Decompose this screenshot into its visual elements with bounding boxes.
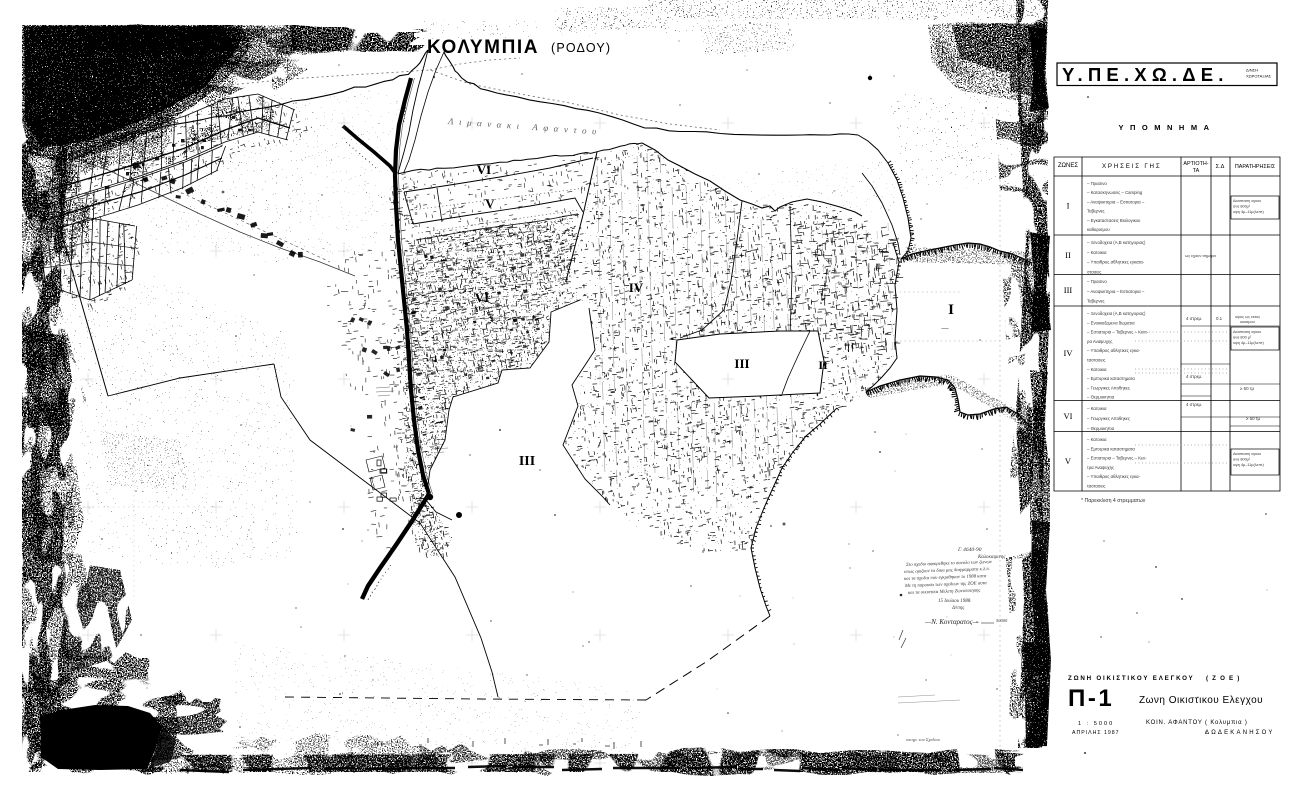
svg-text:– Αναψυκτηρια – Εστιατορια –: – Αναψυκτηρια – Εστιατορια – [1087, 199, 1145, 204]
svg-text:Δ/ντης: Δ/ντης [951, 606, 964, 611]
svg-text:υψη 4μ–11μ(λεπτ): υψη 4μ–11μ(λεπτ) [1233, 341, 1264, 345]
svg-text:ταστασεις: ταστασεις [1087, 484, 1106, 489]
svg-text:—: — [941, 324, 950, 332]
svg-text:4 στρεμ.: 4 στρεμ. [1186, 402, 1202, 407]
svg-text:ρα Αναψυχης: ρα Αναψυχης [1087, 339, 1112, 344]
svg-text:I: I [1067, 201, 1070, 211]
svg-text:τρα Αναψυχης: τρα Αναψυχης [1087, 465, 1114, 470]
svg-text:στασεις: στασεις [1087, 269, 1101, 274]
svg-text:– Εγκαταστασεις Βιολογικου: – Εγκαταστασεις Βιολογικου [1087, 218, 1141, 223]
svg-text:ανα 800μ²: ανα 800μ² [1233, 458, 1251, 462]
svg-text:– Γεωργικες Αποθηκες: – Γεωργικες Αποθηκες [1087, 416, 1130, 421]
svg-text:ΧΩΡΟΤΑΞΙΑΣ: ΧΩΡΟΤΑΞΙΑΣ [1246, 74, 1272, 79]
svg-text:I: I [948, 302, 954, 318]
svg-text:Διασπαση ογκου: Διασπαση ογκου [1233, 330, 1261, 334]
svg-text:15 Ιουλιου 1988.: 15 Ιουλιου 1988. [938, 599, 972, 604]
svg-text:* Παρεκκλιση 4 στρεμματων: * Παρεκκλιση 4 στρεμματων [1081, 498, 1146, 504]
svg-text:– Ξενοδοχεια (Α,Β κατηγοριας): – Ξενοδοχεια (Α,Β κατηγοριας) [1087, 240, 1146, 245]
svg-text:υπογρ. του Σχεδιου: υπογρ. του Σχεδιου [906, 737, 940, 742]
svg-text:υψη 4μ–11μ(λεπτ): υψη 4μ–11μ(λεπτ) [1233, 210, 1264, 214]
svg-text:IV: IV [1064, 348, 1074, 358]
svg-text:VI: VI [1064, 411, 1073, 421]
svg-text:ΔΩΔΕΚΑΝΗΣΟΥ: ΔΩΔΕΚΑΝΗΣΟΥ [1205, 730, 1275, 736]
svg-text:– Κατοικια: – Κατοικια [1087, 406, 1107, 411]
svg-text:V: V [485, 196, 495, 211]
svg-text:– Ξενοδοχεια (Α,Β κατηγοριας): – Ξενοδοχεια (Α,Β κατηγοριας) [1087, 311, 1146, 316]
svg-text:VI: VI [477, 162, 491, 177]
svg-text:οικισμου: οικισμου [1240, 319, 1255, 324]
svg-text:– Θερμοκηπια: – Θερμοκηπια [1087, 395, 1115, 400]
svg-text:ως εχουν σημερα: ως εχουν σημερα [1185, 253, 1217, 258]
svg-text:καθαρισμου: καθαρισμου [1087, 227, 1110, 232]
svg-text:ΠΑΡΑΤΗΡΗΣΕΙΣ: ΠΑΡΑΤΗΡΗΣΕΙΣ [1235, 164, 1276, 170]
svg-text:ΥΠΟΜΝΗΜΑ: ΥΠΟΜΝΗΜΑ [1119, 123, 1216, 132]
svg-text:≥ 50 τμ: ≥ 50 τμ [1240, 386, 1254, 391]
svg-text:50000: 50000 [996, 618, 1008, 623]
svg-text:– Εμπορικα καταστηματα: – Εμπορικα καταστηματα [1087, 376, 1135, 381]
svg-text:– Κατασκηνωσεις – Camping: – Κατασκηνωσεις – Camping [1087, 190, 1143, 195]
svg-text:Ταβερνες: Ταβερνες [1087, 209, 1105, 214]
svg-text:ΑΡΤΙΟΤΗ-: ΑΡΤΙΟΤΗ- [1183, 161, 1208, 167]
svg-text:– Υπαιθριες αθλητικες εγκα-: – Υπαιθριες αθλητικες εγκα- [1087, 348, 1141, 353]
svg-text:ΑΠΡΙΛΗΣ 1987: ΑΠΡΙΛΗΣ 1987 [1072, 730, 1120, 736]
svg-text:Σ.Δ: Σ.Δ [1216, 164, 1225, 170]
svg-text:V: V [1065, 456, 1072, 466]
svg-text:Διασπαση ογκου: Διασπαση ογκου [1233, 199, 1261, 203]
svg-text:1 : 5000: 1 : 5000 [1078, 721, 1114, 727]
svg-text:Γ. 4640-90: Γ. 4640-90 [957, 546, 982, 553]
svg-text:IV: IV [629, 280, 644, 295]
svg-text:ταστασεις: ταστασεις [1087, 358, 1106, 363]
svg-text:– Κατοικια: – Κατοικια [1087, 437, 1107, 442]
svg-text:VI: VI [475, 290, 489, 305]
svg-text:υψη 4μ–11μ(λεπτ): υψη 4μ–11μ(λεπτ) [1233, 463, 1264, 467]
svg-text:Π-1: Π-1 [1068, 685, 1114, 712]
svg-text:– Εστιατορια – Ταβερνες – Κεν: – Εστιατορια – Ταβερνες – Κεν- [1087, 456, 1147, 461]
svg-text:ΖΩΝΕΣ: ΖΩΝΕΣ [1058, 163, 1078, 169]
svg-text:ΧΡΗΣΕΙΣ ΓΗΣ: ΧΡΗΣΕΙΣ ΓΗΣ [1102, 163, 1161, 170]
svg-text:II: II [1065, 250, 1071, 260]
svg-text:– Υπαιθριες αθλητικες εγκα-: – Υπαιθριες αθλητικες εγκα- [1087, 474, 1141, 479]
svg-text:– Θερμοκηπια: – Θερμοκηπια [1087, 426, 1115, 431]
svg-text:4 στρεμ.: 4 στρεμ. [1186, 316, 1202, 321]
svg-text:– Εμπορικα καταστηματα: – Εμπορικα καταστηματα [1087, 446, 1135, 451]
svg-text:(ΡΟΔΟΥ): (ΡΟΔΟΥ) [551, 41, 611, 55]
svg-text:ανα 800 μ²: ανα 800 μ² [1233, 336, 1252, 340]
svg-text:ΚΟΛΥΜΠΙΑ: ΚΟΛΥΜΠΙΑ [427, 37, 539, 58]
svg-text:Διασπαση ογκου: Διασπαση ογκου [1233, 452, 1261, 456]
svg-text:Δ/ΝΣΗ: Δ/ΝΣΗ [1246, 68, 1258, 73]
svg-text:ΤΑ: ΤΑ [1193, 168, 1200, 174]
svg-text:– Υπαιθριες αθλητικες εγκατα-: – Υπαιθριες αθλητικες εγκατα- [1087, 260, 1145, 265]
svg-text:– Πρασινο: – Πρασινο [1087, 181, 1107, 186]
svg-text:ανα 800μ²: ανα 800μ² [1233, 205, 1251, 209]
svg-text:—Ν. Κονταρατος—: —Ν. Κονταρατος— [924, 618, 980, 626]
svg-text:– Πρασινο: – Πρασινο [1087, 279, 1107, 284]
svg-text:III: III [734, 356, 749, 371]
svg-text:Ταβερνες: Ταβερνες [1087, 299, 1105, 304]
svg-text:0.1: 0.1 [1216, 316, 1223, 321]
svg-text:II: II [818, 358, 828, 372]
svg-text:– Ενοικιαζομενα δωματια: – Ενοικιαζομενα δωματια [1087, 320, 1135, 325]
svg-text:– Αναψυκτηρια – Εστιατορια –: – Αναψυκτηρια – Εστιατορια – [1087, 289, 1145, 294]
svg-text:III: III [519, 454, 535, 469]
svg-text:( Ζ Ο Ε ): ( Ζ Ο Ε ) [1206, 675, 1241, 682]
svg-text:4 στρεμ.: 4 στρεμ. [1186, 374, 1202, 379]
svg-text:ΖΩΝΗ ΟΙΚΙΣΤΙΚΟΥ ΕΛΕΓΚΟΥ: ΖΩΝΗ ΟΙΚΙΣΤΙΚΟΥ ΕΛΕΓΚΟΥ [1068, 675, 1194, 682]
svg-text:– Γεωργικες Αποθηκες: – Γεωργικες Αποθηκες [1087, 385, 1130, 390]
svg-text:Υ.ΠΕ.ΧΩ.ΔΕ.: Υ.ΠΕ.ΧΩ.ΔΕ. [1062, 64, 1229, 85]
svg-text:Ζωνη Οικιστικου Ελεγχου: Ζωνη Οικιστικου Ελεγχου [1139, 695, 1263, 706]
svg-text:– Κατοικια: – Κατοικια [1087, 367, 1107, 372]
svg-text:– Κατοικια: – Κατοικια [1087, 250, 1107, 255]
svg-text:ΚΟΙΝ. ΑΦΑΝΤΟΥ ( Κολυμπια ): ΚΟΙΝ. ΑΦΑΝΤΟΥ ( Κολυμπια ) [1146, 720, 1248, 726]
svg-text:– Εστιατορια – Ταβερνες – Κεν: – Εστιατορια – Ταβερνες – Κεντ- [1087, 330, 1149, 335]
svg-text:III: III [1064, 285, 1073, 295]
